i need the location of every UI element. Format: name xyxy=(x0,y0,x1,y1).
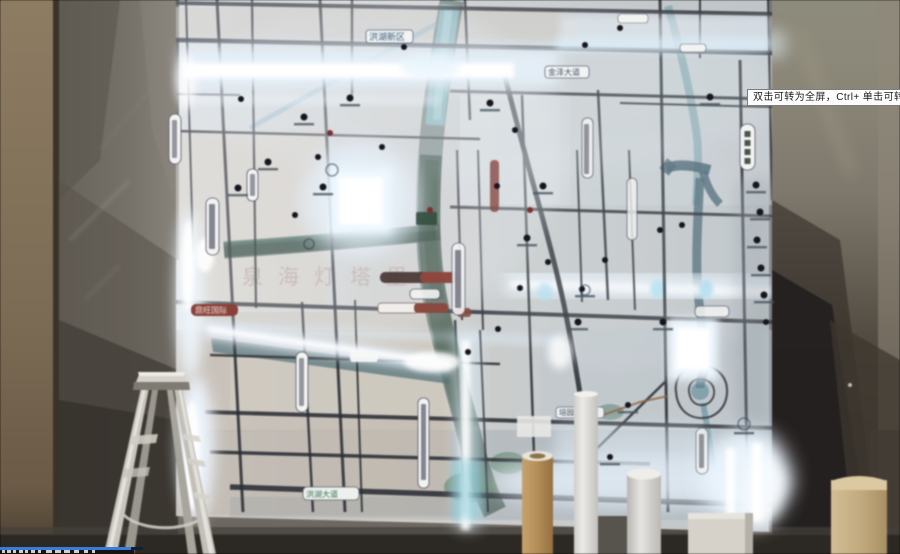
svg-text:洪湖大道: 洪湖大道 xyxy=(306,489,338,499)
svg-text:鼎旺国际: 鼎旺国际 xyxy=(195,306,227,315)
svg-text:洪湖新区: 洪湖新区 xyxy=(369,31,405,42)
svg-text:金泽大道: 金泽大道 xyxy=(548,67,580,77)
